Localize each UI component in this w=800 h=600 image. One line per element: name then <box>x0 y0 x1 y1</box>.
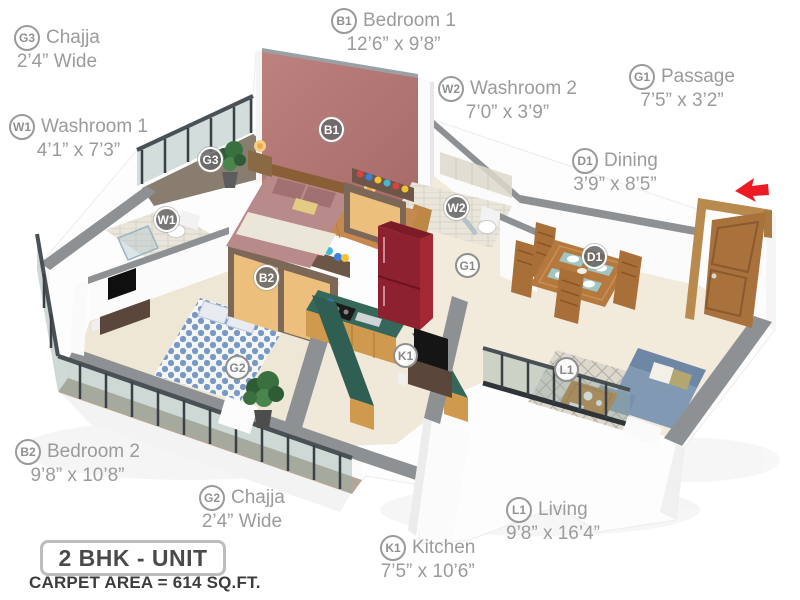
label-washroom2: W2 Washroom 2 7’0” x 3’9” <box>438 76 577 126</box>
room-marker-w2: W2 <box>444 195 469 220</box>
badge-w1: W1 <box>9 114 35 140</box>
badge-b1: B1 <box>331 8 357 34</box>
badge-b2: B2 <box>15 439 41 465</box>
badge-d1: D1 <box>572 148 598 174</box>
label-kitchen: K1 Kitchen 7’5” x 10’6” <box>380 535 475 585</box>
label-bedroom2: B2 Bedroom 2 9’8” x 10’8” <box>15 439 140 489</box>
room-marker-g3: G3 <box>198 147 223 172</box>
entry-direction-arrow <box>735 178 769 202</box>
label-living: L1 Living 9’8” x 16’4” <box>506 497 600 547</box>
badge-g1: G1 <box>629 64 655 90</box>
room-marker-l1: L1 <box>554 357 579 382</box>
room-marker-g2: G2 <box>225 355 250 380</box>
label-dining: D1 Dining 3’9” x 8’5” <box>572 148 658 198</box>
room-marker-d1: D1 <box>582 244 607 269</box>
unit-title: 2 BHK - UNIT <box>40 540 226 576</box>
badge-k1: K1 <box>380 535 406 561</box>
floorplan-page: B1 B2 W1 W2 K1 L1 D1 G1 G2 G3 G3 Chajja … <box>0 0 800 600</box>
room-marker-k1: K1 <box>393 343 418 368</box>
fridge <box>378 221 433 330</box>
label-passage: G1 Passage 7’5” x 3’2” <box>629 64 735 114</box>
room-marker-b1: B1 <box>319 117 344 142</box>
label-bedroom1: B1 Bedroom 1 12’6” x 9’8” <box>331 8 456 58</box>
badge-g3: G3 <box>14 25 40 51</box>
label-washroom1: W1 Washroom 1 4’1” x 7’3” <box>9 114 148 164</box>
carpet-area-text: CARPET AREA = 614 SQ.FT. <box>29 573 261 593</box>
badge-g2: G2 <box>199 485 225 511</box>
room-marker-g1: G1 <box>455 253 480 278</box>
room-marker-b2: B2 <box>254 265 279 290</box>
room-marker-w1: W1 <box>154 207 179 232</box>
badge-l1: L1 <box>506 497 532 523</box>
door-handle <box>712 274 717 279</box>
toilet <box>478 221 496 234</box>
badge-w2: W2 <box>438 76 464 102</box>
label-chajja-g2: G2 Chajja 2’4” Wide <box>199 485 285 535</box>
label-chajja-g3: G3 Chajja 2’4” Wide <box>14 25 100 75</box>
